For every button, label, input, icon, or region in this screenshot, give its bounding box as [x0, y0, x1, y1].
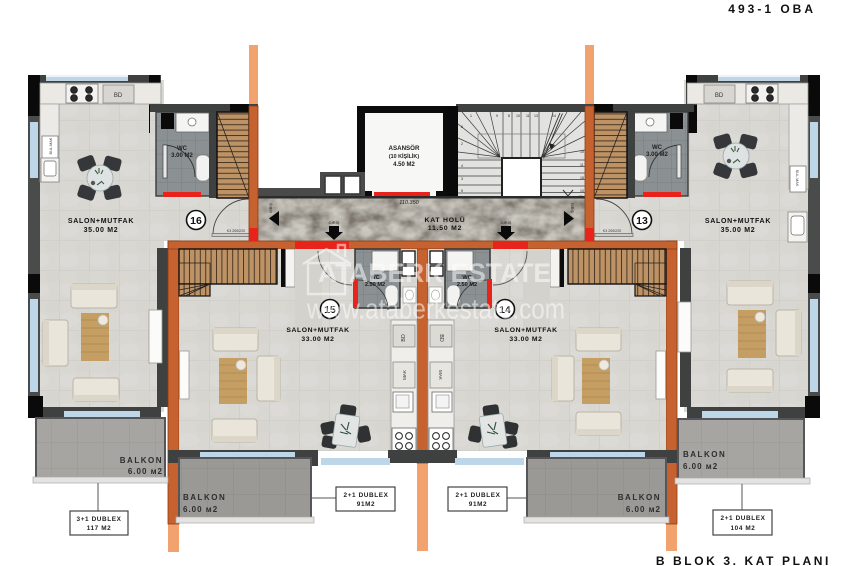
svg-text:91M2: 91M2 — [357, 501, 375, 508]
svg-text:4: 4 — [461, 164, 463, 168]
svg-text:GİRİŞ: GİRİŞ — [329, 220, 340, 225]
svg-text:6.00 м2: 6.00 м2 — [626, 505, 661, 514]
svg-text:BD: BD — [401, 334, 407, 342]
svg-text:11.50 M2: 11.50 M2 — [428, 225, 462, 232]
svg-text:6: 6 — [461, 125, 463, 129]
svg-text:4.50 M2: 4.50 M2 — [393, 162, 415, 168]
svg-text:KAT HOLÜ: KAT HOLÜ — [424, 215, 465, 224]
svg-text:BD: BD — [438, 334, 444, 342]
svg-text:13: 13 — [636, 215, 648, 227]
svg-text:6.00 м2: 6.00 м2 — [183, 505, 218, 514]
svg-text:ATABERK ESTATE: ATABERK ESTATE — [318, 258, 551, 288]
svg-text:BALKON: BALKON — [120, 456, 163, 465]
svg-text:3.00 M2: 3.00 M2 — [171, 153, 193, 159]
svg-text:2+1 DUBLEX: 2+1 DUBLEX — [344, 492, 389, 499]
svg-text:3+1 DUBLEX: 3+1 DUBLEX — [77, 516, 122, 523]
svg-text:BUL.MAK: BUL.MAK — [49, 137, 53, 154]
svg-text:11: 11 — [526, 114, 530, 118]
svg-text:16: 16 — [190, 215, 202, 227]
svg-text:13: 13 — [534, 114, 538, 118]
svg-text:SALON+MUTFAK: SALON+MUTFAK — [705, 218, 771, 225]
svg-text:91M2: 91M2 — [469, 501, 487, 508]
svg-text:GİRİŞ: GİRİŞ — [501, 220, 512, 225]
svg-text:6.00 м2: 6.00 м2 — [128, 467, 163, 476]
svg-text:BALKON: BALKON — [683, 450, 726, 459]
svg-text:117 M2: 117 M2 — [87, 525, 112, 532]
svg-text:110.350: 110.350 — [399, 200, 419, 206]
svg-text:BALKON: BALKON — [618, 493, 661, 502]
svg-text:3.00 M2: 3.00 M2 — [646, 152, 668, 158]
svg-text:SALON+MUTFAK: SALON+MUTFAK — [286, 327, 349, 334]
svg-text:GİRİŞ: GİRİŞ — [268, 203, 273, 213]
svg-text:ASANSÖR: ASANSÖR — [389, 145, 420, 152]
svg-text:5: 5 — [461, 189, 463, 193]
svg-text:(10 KİŞİLİK): (10 KİŞİLİK) — [389, 153, 419, 160]
svg-text:9: 9 — [496, 114, 498, 118]
svg-text:2+1 DUBLEX: 2+1 DUBLEX — [456, 492, 501, 499]
svg-text:WC: WC — [652, 145, 663, 151]
svg-text:BD: BD — [114, 93, 123, 99]
svg-text:3: 3 — [461, 177, 463, 181]
svg-text:2: 2 — [461, 142, 463, 146]
svg-text:BALKON: BALKON — [183, 493, 226, 502]
svg-text:WC: WC — [177, 146, 188, 152]
svg-text:2+1 DUBLEX: 2+1 DUBLEX — [721, 515, 766, 522]
svg-text:BD: BD — [715, 93, 724, 99]
svg-text:SALON+MUTFAK: SALON+MUTFAK — [68, 218, 134, 225]
svg-text:104 M2: 104 M2 — [731, 525, 756, 532]
svg-text:K3 200/220: K3 200/220 — [603, 229, 621, 233]
svg-text:8: 8 — [508, 114, 510, 118]
svg-text:10: 10 — [580, 189, 584, 193]
svg-text:www.ataberkestate.com: www.ataberkestate.com — [306, 294, 565, 326]
svg-text:14: 14 — [552, 114, 556, 118]
svg-text:35.00 M2: 35.00 M2 — [721, 227, 756, 234]
svg-text:K3 200/220: K3 200/220 — [227, 229, 245, 233]
svg-text:33.00 M2: 33.00 M2 — [509, 336, 542, 343]
svg-text:10: 10 — [580, 150, 584, 154]
svg-text:BUL.MAK: BUL.MAK — [795, 170, 799, 187]
svg-text:SALON+MUTFAK: SALON+MUTFAK — [494, 327, 557, 334]
svg-text:6.00 м2: 6.00 м2 — [683, 462, 718, 471]
svg-text:GİRİŞ: GİRİŞ — [570, 203, 575, 213]
svg-text:MAK: MAK — [438, 370, 443, 381]
svg-text:1: 1 — [470, 114, 472, 118]
svg-text:10: 10 — [516, 114, 520, 118]
svg-text:11: 11 — [580, 163, 584, 167]
svg-text:MAK: MAK — [402, 369, 407, 380]
svg-text:33.00 M2: 33.00 M2 — [301, 336, 334, 343]
svg-text:B BLOK 3. KAT PLANI: B BLOK 3. KAT PLANI — [656, 554, 831, 566]
svg-text:18: 18 — [580, 176, 584, 180]
svg-text:493-1 OBA: 493-1 OBA — [728, 2, 816, 16]
svg-text:35.00 M2: 35.00 M2 — [84, 227, 119, 234]
